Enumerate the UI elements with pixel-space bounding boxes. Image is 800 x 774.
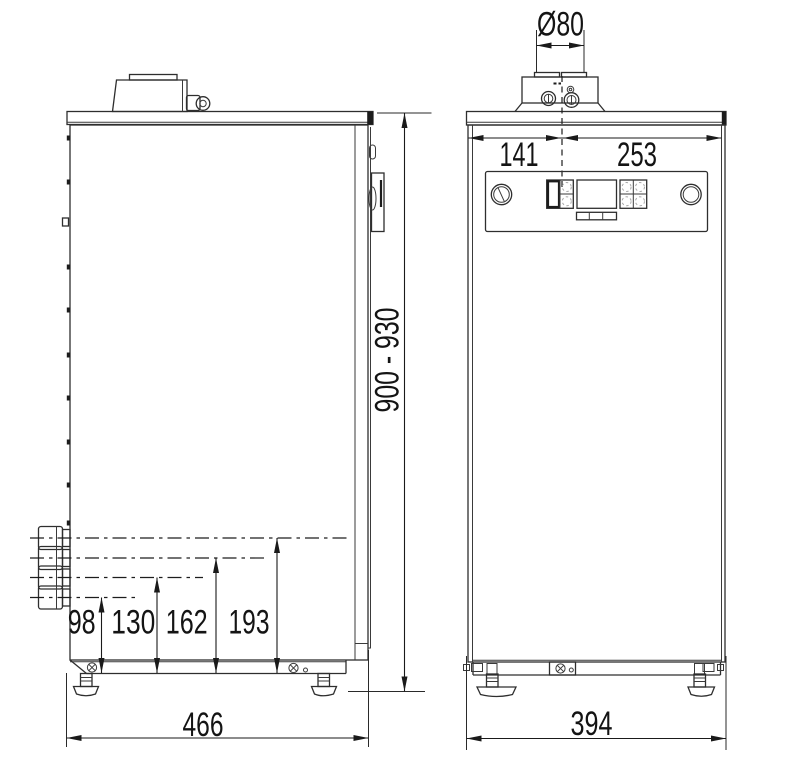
dim-label-130: 130 — [111, 604, 155, 642]
dim-width: 394 — [467, 656, 727, 750]
small-hole — [569, 668, 573, 672]
side-base — [70, 660, 346, 696]
dim-connection-162: 162 — [166, 558, 219, 673]
screw-symbol — [556, 664, 565, 673]
dim-label-depth: 466 — [183, 706, 224, 744]
side-control-panel-edge — [369, 173, 384, 232]
flue-valve — [564, 86, 579, 107]
small-hole — [304, 668, 308, 672]
dim-label-flue-diameter: Ø80 — [537, 6, 584, 44]
left-knob — [491, 184, 511, 204]
adjustable-foot — [74, 674, 99, 696]
screw-symbol — [87, 663, 96, 672]
screw-symbol — [289, 663, 298, 672]
right-knob — [681, 184, 701, 204]
adjustable-foot — [688, 664, 715, 697]
dim-label-162: 162 — [166, 604, 208, 642]
display — [577, 180, 617, 208]
marking-dot — [554, 83, 557, 85]
front-base — [464, 662, 724, 697]
side-cabinet-body — [63, 125, 385, 660]
control-panel — [486, 172, 708, 232]
dim-connection-130: 130 — [111, 578, 160, 674]
left-button-group — [547, 180, 574, 208]
drawing-canvas: Ø80 141 253 900 - 930 98 130 — [0, 0, 800, 774]
dim-label-flue-left: 141 — [500, 136, 539, 174]
adjustable-foot — [312, 674, 337, 696]
front-top-band — [467, 112, 727, 126]
dim-flue-offsets: 141 253 — [469, 135, 722, 174]
back-edge-ticks — [63, 136, 71, 526]
side-top-band — [67, 112, 373, 125]
front-flue-collar — [515, 73, 605, 112]
right-button-group — [620, 180, 647, 208]
dim-label-height-range: 900 - 930 — [369, 308, 407, 413]
marking-dot — [559, 83, 562, 85]
dim-flue-diameter: Ø80 — [537, 6, 585, 73]
button-row — [577, 212, 617, 220]
dim-label-flue-right: 253 — [617, 136, 657, 174]
front-cabinet-body — [468, 125, 725, 662]
dim-label-193: 193 — [229, 604, 270, 642]
pipe-centerlines — [30, 538, 348, 598]
pipe-connections — [39, 527, 71, 610]
dim-label-width: 394 — [571, 705, 613, 743]
dim-label-98: 98 — [68, 604, 96, 642]
boiler-dimension-drawing: Ø80 141 253 900 - 930 98 130 — [0, 0, 800, 774]
side-flue-fitting — [187, 96, 210, 111]
side-flue-collar — [113, 75, 210, 112]
dim-height-range: 900 - 930 — [348, 113, 432, 692]
